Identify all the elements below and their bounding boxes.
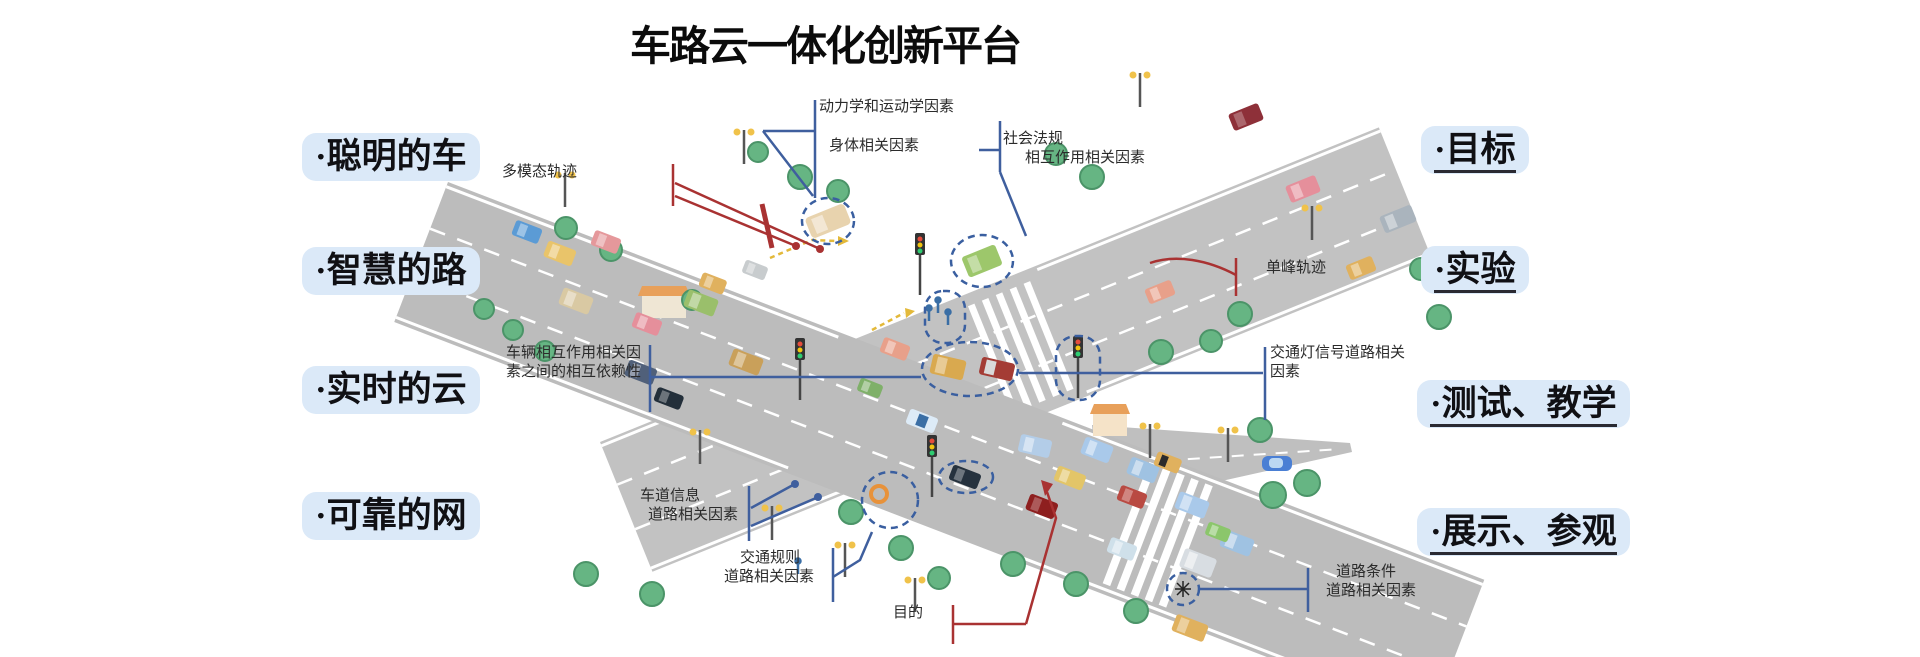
annotation-unimodal-trajectory: 单峰轨迹 [1266, 258, 1326, 277]
slide: 车路云一体化创新平台 ·聪明的车 ·智慧的路 ·实时的云 ·可靠的网 ·目标 ·… [0, 0, 1920, 657]
annotation-traffic-light-factors: 交通灯信号道路相关 因素 [1270, 343, 1405, 381]
page-title: 车路云一体化创新平台 [560, 12, 1090, 72]
label-smart-vehicle: ·聪明的车 [302, 133, 480, 181]
yellow-trajectory-arrows [838, 236, 915, 318]
kiosk-icon [1090, 404, 1130, 436]
concept-car [1262, 456, 1292, 471]
label-goals: ·目标 [1421, 126, 1529, 174]
label-reliable-network: ·可靠的网 [302, 492, 480, 540]
highlighted-bus [804, 203, 851, 239]
annotation-dynamics-kinematics: 动力学和运动学因素 [819, 97, 954, 116]
annotation-road-condition: 道路条件 道路相关因素 [1326, 562, 1416, 600]
annotation-traffic-rules: 交通规则 道路相关因素 [724, 548, 814, 586]
annotation-vehicle-interdependence: 车辆相互作用相关因 素之间的相互依赖性 [506, 343, 641, 381]
label-intelligent-road: ·智慧的路 [302, 247, 480, 295]
intersection-illustration [0, 0, 1920, 657]
label-display-visits: ·展示、参观 [1417, 508, 1630, 556]
highlighted-green-truck [961, 244, 1003, 278]
annotation-purpose: 目的 [893, 603, 923, 622]
annotation-body-factors: 身体相关因素 [829, 136, 919, 155]
road-crack-icon [1175, 581, 1191, 597]
label-experiments: ·实验 [1421, 246, 1529, 294]
label-realtime-cloud: ·实时的云 [302, 366, 480, 414]
annotation-lane-information: 车道信息 道路相关因素 [640, 486, 738, 524]
label-testing-teaching: ·测试、教学 [1417, 380, 1630, 428]
annotation-multimodal-trajectory: 多模态轨迹 [502, 162, 577, 181]
annotation-social-regulations: 社会法规 相互作用相关因素 [1003, 129, 1145, 167]
